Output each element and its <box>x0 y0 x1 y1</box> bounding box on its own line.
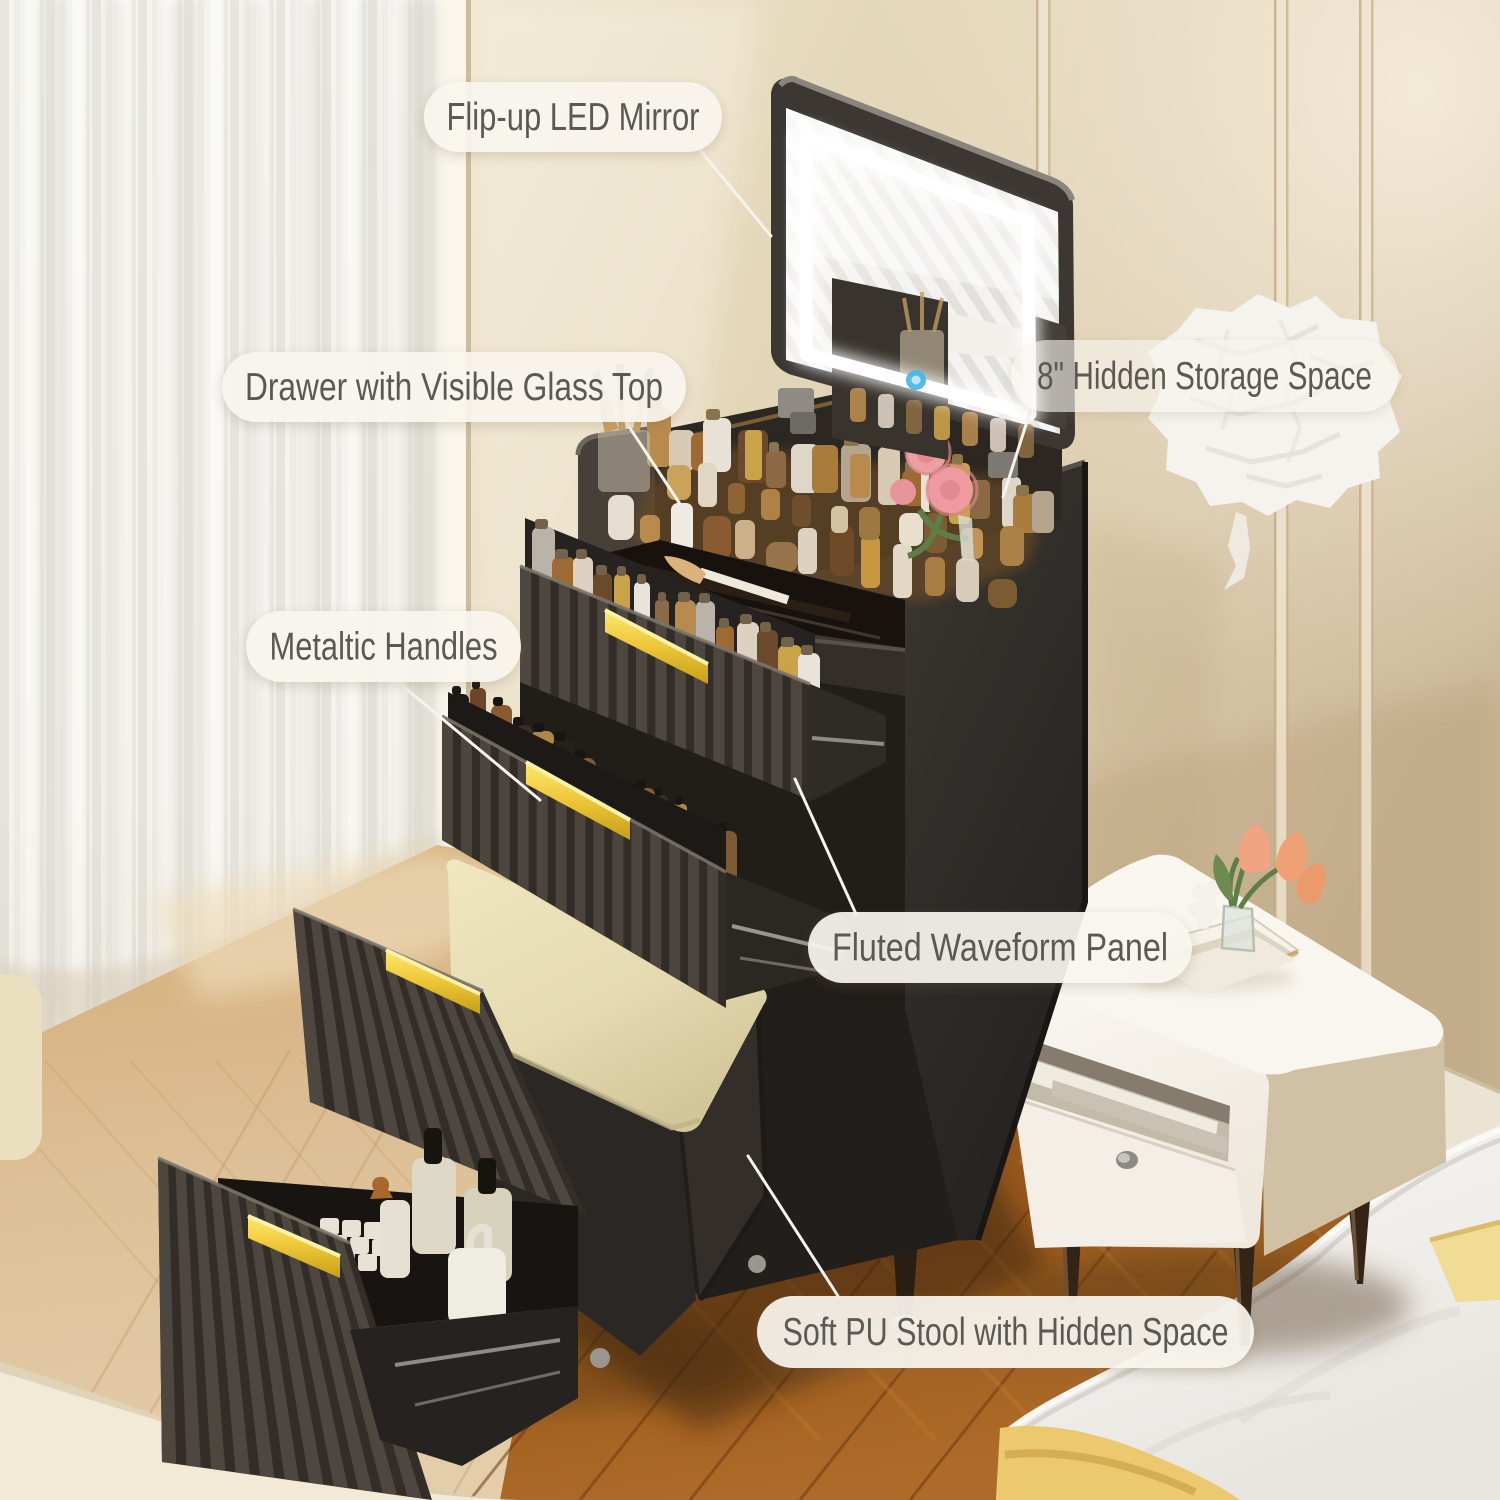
svg-text:8" Hidden Storage Space: 8" Hidden Storage Space <box>1037 355 1372 398</box>
svg-text:Flip-up LED Mirror: Flip-up LED Mirror <box>447 96 700 139</box>
svg-text:Drawer with Visible Glass Top: Drawer with Visible Glass Top <box>245 366 663 409</box>
svg-text:Soft PU Stool with Hidden Spac: Soft PU Stool with Hidden Space <box>783 1311 1229 1354</box>
svg-text:Fluted Waveform Panel: Fluted Waveform Panel <box>832 927 1168 970</box>
svg-text:Metaltic Handles: Metaltic Handles <box>270 626 498 669</box>
